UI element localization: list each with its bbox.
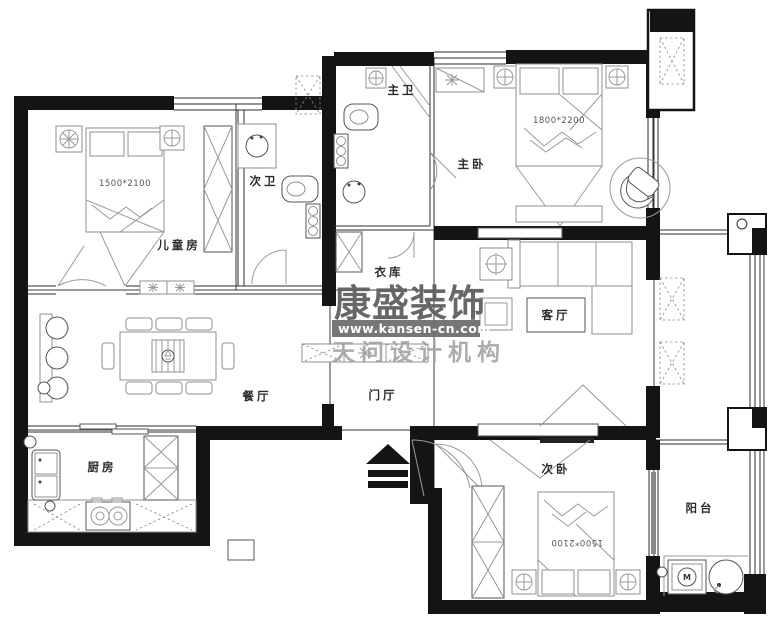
label-closet: 衣库 <box>375 265 404 279</box>
label-children-room: 儿童房 <box>156 238 201 252</box>
floor-plan: M 儿童房 1500*2100 次卫 主卫 主卧 1800*2200 衣库 客厅… <box>0 0 780 634</box>
entry-arrow <box>366 444 410 488</box>
label-master-bath: 主卫 <box>388 83 417 97</box>
label-dining-room: 餐厅 <box>242 389 272 403</box>
label-hall: 门厅 <box>369 388 398 402</box>
watermark: 康盛装饰 www.kansen-cn.com 天问设计机构 <box>332 282 506 366</box>
label-master-bedroom: 主卧 <box>458 157 487 171</box>
label-balcony: 阳台 <box>686 501 715 515</box>
label-living-room: 客厅 <box>541 308 571 322</box>
label-second-bedroom: 次卧 <box>542 462 571 476</box>
washer-label: M <box>683 573 691 582</box>
watermark-website: www.kansen-cn.com <box>338 321 491 336</box>
watermark-brand: 康盛装饰 <box>334 282 486 325</box>
label-kitchen: 厨房 <box>88 460 117 474</box>
dim-master-bed: 1800*2200 <box>533 116 585 126</box>
floor-plan-drawing: M 儿童房 1500*2100 次卫 主卫 主卧 1800*2200 衣库 客厅… <box>0 0 780 634</box>
dim-second-bed: 1500*2100 <box>551 537 603 547</box>
balcony-fixtures: M <box>657 556 748 596</box>
label-second-bath: 次卫 <box>250 174 279 188</box>
bay-window <box>648 10 694 110</box>
dim-children-bed: 1500*2100 <box>99 179 151 189</box>
watermark-org: 天问设计机构 <box>332 339 506 366</box>
